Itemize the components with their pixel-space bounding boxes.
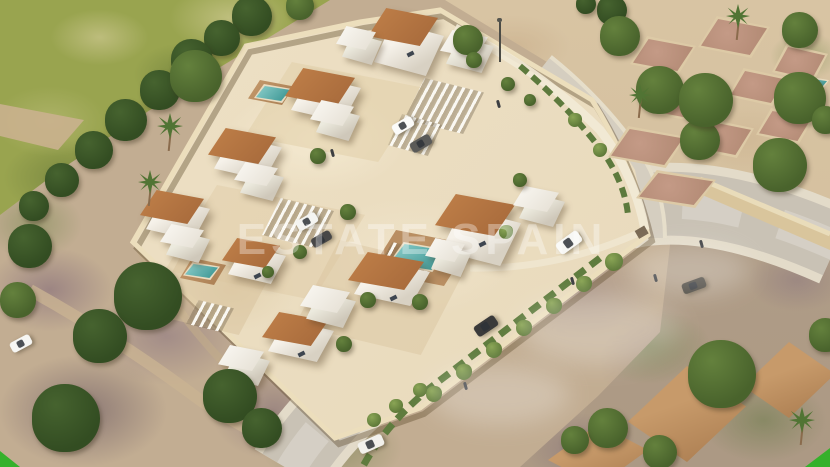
villa-annex-cube — [230, 160, 288, 206]
palm-fronds — [726, 4, 750, 28]
tree — [588, 408, 628, 448]
car-windshield — [15, 339, 25, 349]
tree — [643, 435, 677, 467]
palm-fronds — [138, 170, 162, 194]
lamppost-pole — [499, 22, 501, 62]
wall-vine — [605, 253, 623, 271]
palm-tree — [789, 407, 815, 447]
tree — [561, 426, 589, 454]
tree — [501, 77, 515, 91]
wall-vine — [568, 113, 582, 127]
tree — [105, 99, 147, 141]
tree — [242, 408, 282, 448]
tree — [75, 131, 113, 169]
palm-tree — [726, 4, 750, 42]
tree — [412, 294, 428, 310]
lamppost-head — [497, 18, 502, 22]
tree — [19, 191, 49, 221]
wall-vine — [593, 143, 607, 157]
tree — [812, 106, 830, 134]
tree — [524, 94, 536, 106]
ruin-plot — [636, 170, 716, 208]
tree — [576, 0, 596, 14]
tree — [73, 309, 127, 363]
wall-vine — [486, 342, 502, 358]
tree — [8, 224, 52, 268]
tree — [262, 266, 274, 278]
aerial-render-canvas: ESTATE SPAIN — [0, 0, 830, 467]
villa-annex-cube — [332, 24, 386, 70]
car-parked-white-car — [9, 333, 34, 353]
tree — [679, 73, 733, 127]
road-haze — [430, 365, 570, 425]
palm-tree — [157, 113, 183, 153]
car-windshield — [415, 139, 425, 149]
wall-vine — [367, 413, 381, 427]
person — [570, 277, 575, 286]
tree — [453, 25, 483, 55]
villa-annex-cube — [306, 98, 364, 146]
tree — [688, 340, 756, 408]
ruin-plot-fill — [611, 129, 683, 165]
tree — [336, 336, 352, 352]
villa-annex-cube — [296, 283, 360, 333]
tree — [310, 148, 326, 164]
tree — [513, 173, 527, 187]
road-haze — [520, 295, 680, 365]
road-haze — [630, 245, 750, 295]
ruin-plot — [608, 126, 686, 168]
tree — [782, 12, 818, 48]
tree — [170, 50, 222, 102]
car-windshield — [397, 121, 407, 131]
palm-fronds — [789, 407, 815, 433]
palm-fronds — [629, 84, 651, 106]
lamppost — [497, 18, 503, 62]
car-white-pickup — [357, 433, 386, 455]
car-dark-sedan-on-road — [473, 314, 500, 337]
car-windshield — [365, 439, 376, 450]
car-windshield — [480, 321, 491, 332]
villa-annex-cube — [156, 222, 214, 268]
ruin-plot-fill — [639, 173, 713, 205]
wall-vine — [413, 383, 427, 397]
tree — [753, 138, 807, 192]
wall-vine — [389, 399, 403, 413]
wall-vine — [576, 276, 592, 292]
tree — [45, 163, 79, 197]
tree — [114, 262, 182, 330]
tree — [600, 16, 640, 56]
tree — [466, 52, 482, 68]
neighborhood-house-roof — [743, 342, 830, 418]
tree — [809, 318, 830, 352]
person — [496, 100, 501, 109]
palm-tree — [629, 84, 651, 120]
tree — [32, 384, 100, 452]
watermark-text: ESTATE SPAIN — [237, 215, 607, 265]
palm-tree — [138, 170, 162, 208]
tree — [360, 292, 376, 308]
tree — [0, 282, 36, 318]
tree — [286, 0, 314, 20]
palm-fronds — [157, 113, 183, 139]
